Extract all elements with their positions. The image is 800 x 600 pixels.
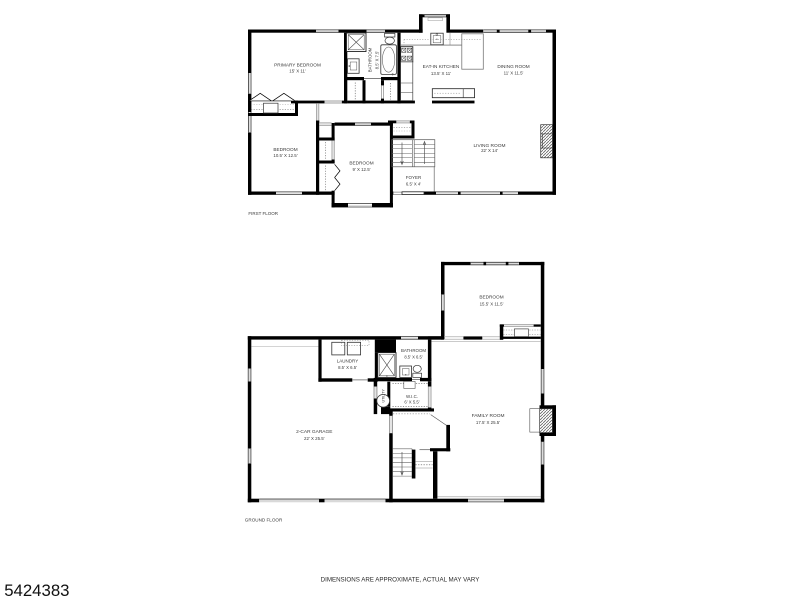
svg-text:EAT-IN KITCHEN: EAT-IN KITCHEN (423, 64, 460, 69)
svg-text:13.5' X 11': 13.5' X 11' (431, 71, 451, 76)
svg-text:5424383: 5424383 (4, 581, 69, 600)
svg-text:6' X 5.5': 6' X 5.5' (404, 399, 419, 404)
svg-text:LAUNDRY: LAUNDRY (337, 358, 358, 363)
svg-text:BEDROOM: BEDROOM (349, 160, 373, 165)
svg-text:BATHROOM: BATHROOM (401, 348, 426, 353)
svg-text:BEDROOM: BEDROOM (273, 147, 297, 152)
svg-text:10.5' X 12.5': 10.5' X 12.5' (273, 153, 297, 158)
svg-text:8.5' X 7.5': 8.5' X 7.5' (375, 51, 380, 70)
svg-text:BATHROOM: BATHROOM (368, 47, 373, 72)
svg-text:9' X 12.5': 9' X 12.5' (352, 167, 370, 172)
svg-text:FOYER: FOYER (406, 175, 422, 180)
svg-text:15.5' X 11.5': 15.5' X 11.5' (480, 301, 504, 306)
svg-text:6.5' X 4': 6.5' X 4' (406, 182, 421, 187)
svg-text:DINING ROOM: DINING ROOM (497, 64, 529, 69)
svg-text:GROUND FLOOR: GROUND FLOOR (245, 518, 283, 523)
svg-text:17.5' X 25.5': 17.5' X 25.5' (476, 420, 500, 425)
svg-text:8.5' X 6.5': 8.5' X 6.5' (404, 355, 423, 360)
svg-text:11' X 11.5': 11' X 11.5' (504, 71, 524, 76)
svg-text:UTILITY: UTILITY (382, 389, 386, 403)
svg-text:FIRST FLOOR: FIRST FLOOR (248, 211, 278, 216)
svg-text:PRIMARY BEDROOM: PRIMARY BEDROOM (274, 62, 321, 67)
svg-text:2-CAR GARAGE: 2-CAR GARAGE (296, 429, 332, 435)
svg-text:BEDROOM: BEDROOM (479, 294, 503, 299)
svg-text:8.5' X 6.5': 8.5' X 6.5' (338, 365, 357, 370)
svg-text:DIMENSIONS ARE APPROXIMATE, AC: DIMENSIONS ARE APPROXIMATE, ACTUAL MAY V… (321, 576, 480, 583)
svg-text:22' X 14': 22' X 14' (481, 148, 498, 153)
svg-text:15' X 11': 15' X 11' (289, 69, 306, 74)
svg-text:22' X 25.5': 22' X 25.5' (304, 436, 325, 441)
svg-text:FAMILY ROOM: FAMILY ROOM (472, 413, 505, 419)
